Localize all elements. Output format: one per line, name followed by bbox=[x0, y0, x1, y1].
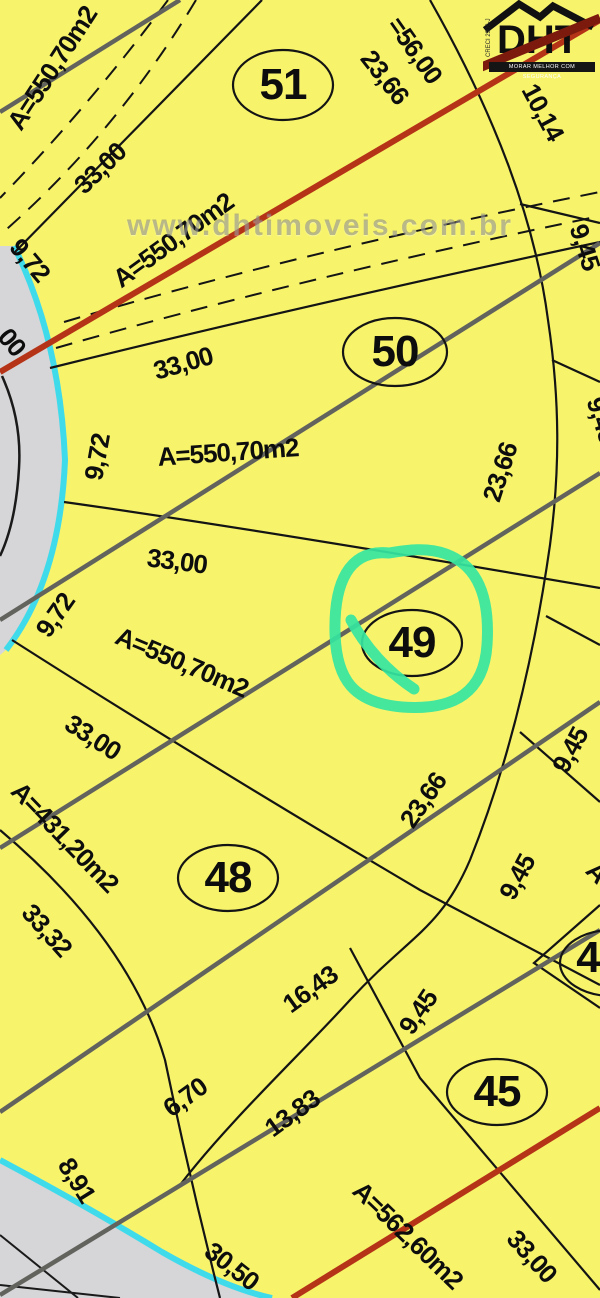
plat-map: 51 50 49 48 45 4 A=550,70m2 33,00 9,72 0… bbox=[0, 0, 600, 1298]
dht-logo-tagline: MORAR MELHOR COM SEGURANÇA bbox=[489, 62, 595, 72]
dht-logo: DHT MORAR MELHOR COM SEGURANÇA CRECI 290… bbox=[483, 0, 600, 80]
watermark-text: www.dhtimoveis.com.br bbox=[127, 211, 513, 241]
highlight-marker bbox=[0, 0, 600, 1298]
logo-stripe bbox=[483, 18, 600, 68]
dht-logo-creci: CRECI 2906-J bbox=[486, 17, 492, 57]
